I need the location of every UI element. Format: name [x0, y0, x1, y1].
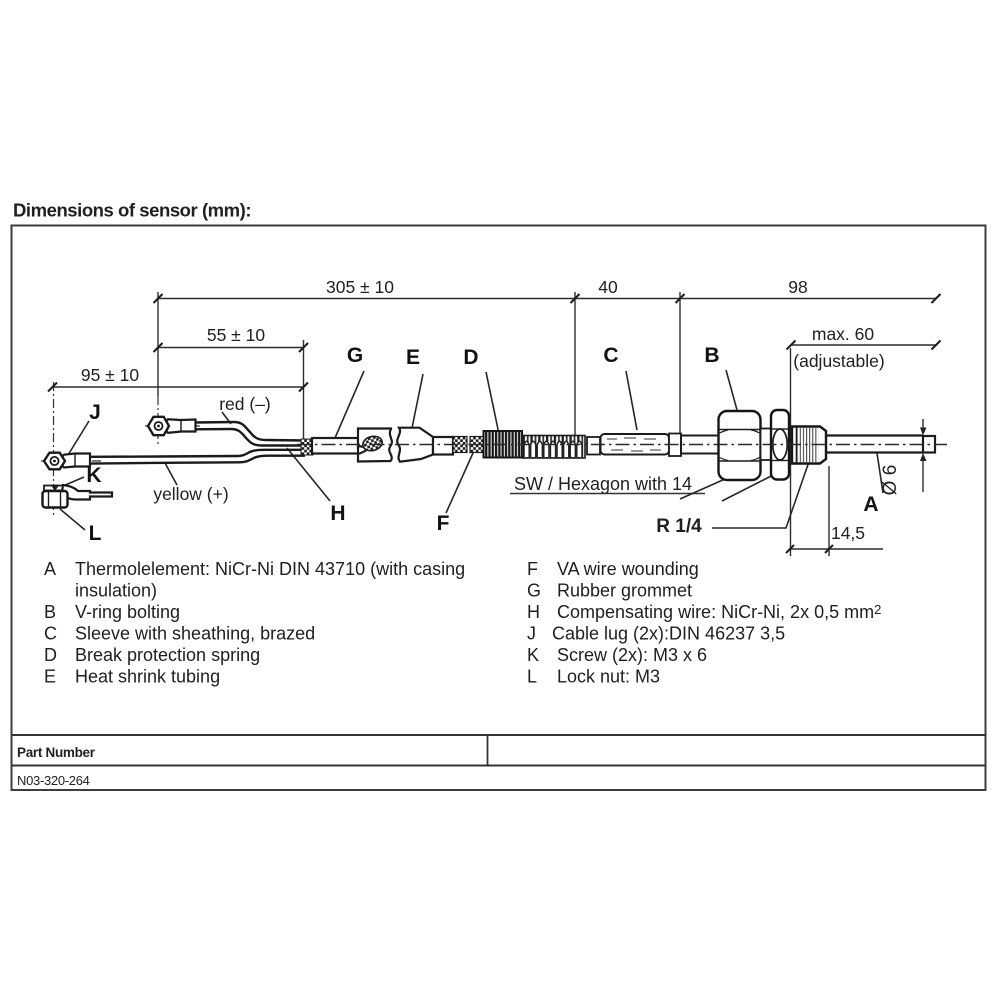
svg-text:B: B — [44, 602, 56, 622]
svg-text:L: L — [527, 667, 537, 687]
svg-text:40: 40 — [598, 277, 618, 297]
svg-text:Heat shrink tubing: Heat shrink tubing — [75, 667, 220, 687]
svg-text:insulation): insulation) — [75, 581, 157, 601]
svg-text:VA wire wounding: VA wire wounding — [557, 559, 699, 579]
svg-text:D: D — [44, 645, 57, 665]
svg-text:J: J — [89, 401, 101, 424]
svg-text:yellow (+): yellow (+) — [153, 484, 228, 504]
svg-text:Part Number: Part Number — [17, 745, 96, 760]
svg-text:95 ± 10: 95 ± 10 — [81, 365, 140, 385]
svg-text:Rubber grommet: Rubber grommet — [557, 581, 692, 601]
svg-text:Screw (2x): M3 x 6: Screw (2x): M3 x 6 — [557, 645, 707, 665]
svg-text:G: G — [347, 344, 363, 367]
svg-text:Dimensions of sensor (mm):: Dimensions of sensor (mm): — [13, 200, 251, 221]
svg-text:SW / Hexagon with 14: SW / Hexagon with 14 — [514, 474, 692, 494]
svg-text:E: E — [44, 667, 56, 687]
svg-text:Sleeve with sheathing, brazed: Sleeve with sheathing, brazed — [75, 624, 315, 644]
svg-text:max. 60: max. 60 — [812, 324, 875, 344]
svg-text:55 ± 10: 55 ± 10 — [207, 325, 266, 345]
svg-text:J: J — [527, 624, 536, 644]
svg-text:N03-320-264: N03-320-264 — [17, 773, 90, 788]
svg-text:red (–): red (–) — [219, 394, 271, 414]
svg-text:A: A — [44, 559, 56, 579]
svg-text:K: K — [527, 645, 539, 665]
svg-text:305 ± 10: 305 ± 10 — [326, 277, 394, 297]
svg-text:Cable lug (2x):DIN 46237 3,5: Cable lug (2x):DIN 46237 3,5 — [552, 624, 785, 644]
svg-text:Thermolelement: NiCr-Ni DIN 43: Thermolelement: NiCr-Ni DIN 43710 (with … — [75, 559, 465, 579]
svg-text:A: A — [863, 493, 878, 516]
svg-text:C: C — [603, 344, 618, 367]
svg-text:B: B — [704, 344, 719, 367]
svg-text:Compensating wire: NiCr-Ni, 2x: Compensating wire: NiCr-Ni, 2x 0,5 mm2 — [557, 602, 881, 622]
svg-text:G: G — [527, 581, 541, 601]
svg-text:L: L — [89, 522, 102, 545]
svg-text:E: E — [406, 346, 420, 369]
svg-text:14,5: 14,5 — [831, 523, 865, 543]
svg-text:Break protection spring: Break protection spring — [75, 645, 260, 665]
svg-text:H: H — [527, 602, 540, 622]
svg-text:R 1/4: R 1/4 — [656, 516, 702, 537]
svg-text:V-ring bolting: V-ring bolting — [75, 602, 180, 622]
svg-text:F: F — [437, 512, 450, 535]
svg-text:F: F — [527, 559, 538, 579]
svg-text:(adjustable): (adjustable) — [793, 351, 884, 371]
svg-text:H: H — [330, 502, 345, 525]
svg-text:Lock nut: M3: Lock nut: M3 — [557, 667, 660, 687]
svg-text:C: C — [44, 624, 57, 644]
svg-text:D: D — [463, 346, 478, 369]
svg-text:98: 98 — [788, 277, 807, 297]
